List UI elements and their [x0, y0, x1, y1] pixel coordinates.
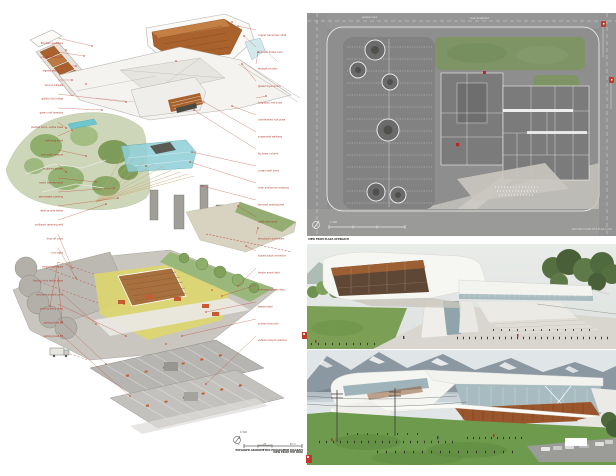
annotation-label: planted berm, native trees [16, 126, 63, 129]
annotation-label: bus layby [16, 252, 63, 255]
axon-scale-label: 1:500 [240, 431, 247, 434]
annotation-label: suspended walkway [258, 136, 312, 139]
annotation-label: 50 m [290, 443, 296, 446]
annotation-label: copper rainscreen shell [258, 34, 312, 37]
annotation-label: glazed foyer prism [258, 85, 312, 88]
street-label-2: main boulevard [470, 17, 489, 20]
annotation-label: acoustic timber liner [258, 51, 312, 54]
annotation-label: feature stair [258, 306, 312, 309]
annotation-column-right: copper rainscreen shellacoustic timber l… [258, 34, 312, 342]
annotation-label: long-span roof truss [258, 102, 312, 105]
annotation-label: parking level B1 [16, 322, 63, 325]
road-east [599, 13, 616, 236]
annotation-label: sculpture garden [16, 168, 63, 171]
annotation-label: fire stair enclosure [16, 42, 63, 45]
annotation-label: sunken forecourt [258, 323, 312, 326]
annotation-label: skylight monitor [258, 68, 312, 71]
annotation-label: 0 [238, 443, 240, 446]
annotation-label: retail arcade below [16, 210, 63, 213]
annotation-label: event lawn terraces [16, 182, 63, 185]
parking-field [343, 37, 435, 209]
annotation-label: mechanical plant zone [16, 294, 63, 297]
road-south [307, 209, 616, 236]
rendering-2 [307, 350, 616, 465]
rendering-2-graphic [307, 350, 616, 465]
annotation-label: stormwater planting [16, 196, 63, 199]
annotation-label: service catwalk [16, 84, 63, 87]
render2-marker [306, 455, 312, 463]
site-plan-graphic [307, 13, 616, 236]
annotation-label: reflecting pond [16, 140, 63, 143]
annotation-label: terraced seating bowl [258, 204, 312, 207]
annotation-label: cable stay array [258, 221, 312, 224]
annotation-label: structural core towers [258, 238, 312, 241]
site-scale-label: 1:500 [330, 221, 337, 224]
annotation-label: egress stair core [16, 70, 63, 73]
presentation-board: fire stair enclosureprecast tread unitse… [0, 0, 616, 476]
render2-caption: VIEW FROM THE PARK [225, 451, 303, 454]
annotation-column-left: fire stair enclosureprecast tread unitse… [16, 42, 63, 338]
render1-caption: VIEW FROM PLAZA APPROACH [308, 238, 352, 241]
street-label-1: service road [362, 16, 377, 19]
axon-scale-ticks: 02550 m [238, 443, 296, 446]
annotation-label: scalloped retaining wall [16, 224, 63, 227]
annotation-label: cantilevered roof plate [258, 119, 312, 122]
annotation-label: gallery link bridge [16, 98, 63, 101]
annotation-label: parking level B2 [16, 336, 63, 339]
glass-volume [121, 140, 196, 172]
annotation-label: fly tower volume [258, 153, 312, 156]
annotation-label: curtain wall band [258, 170, 312, 173]
render1-marker [302, 332, 307, 339]
annotation-label: pollinator garden strip [258, 289, 312, 292]
annotation-label: loading dock below plaza [16, 280, 63, 283]
annotation-label: precast tread units [16, 56, 63, 59]
rendering-1-graphic [307, 244, 616, 349]
annotation-label: park path network [16, 154, 63, 157]
annotation-label: main auditorium massing [258, 187, 312, 190]
site-caption: GROUND FLOOR SITE PLAN 1:500 [480, 228, 612, 231]
axon-diagram-panel: fire stair enclosureprecast tread unitse… [6, 6, 306, 468]
annotation-label: timber event deck [258, 272, 312, 275]
annotation-label: drop-off court [16, 238, 63, 241]
annotation-label: 25 [263, 443, 266, 446]
annotation-label: green roof meadow [16, 112, 63, 115]
annotation-label: parking entry ramp [16, 308, 63, 311]
annotation-label: service yard gate [16, 266, 63, 269]
rendering-1 [307, 244, 616, 349]
site-plan-panel [307, 13, 616, 236]
annotation-label: vehicle ramp to parking [258, 340, 312, 343]
annotation-label: sloped plaza connector [258, 255, 312, 258]
